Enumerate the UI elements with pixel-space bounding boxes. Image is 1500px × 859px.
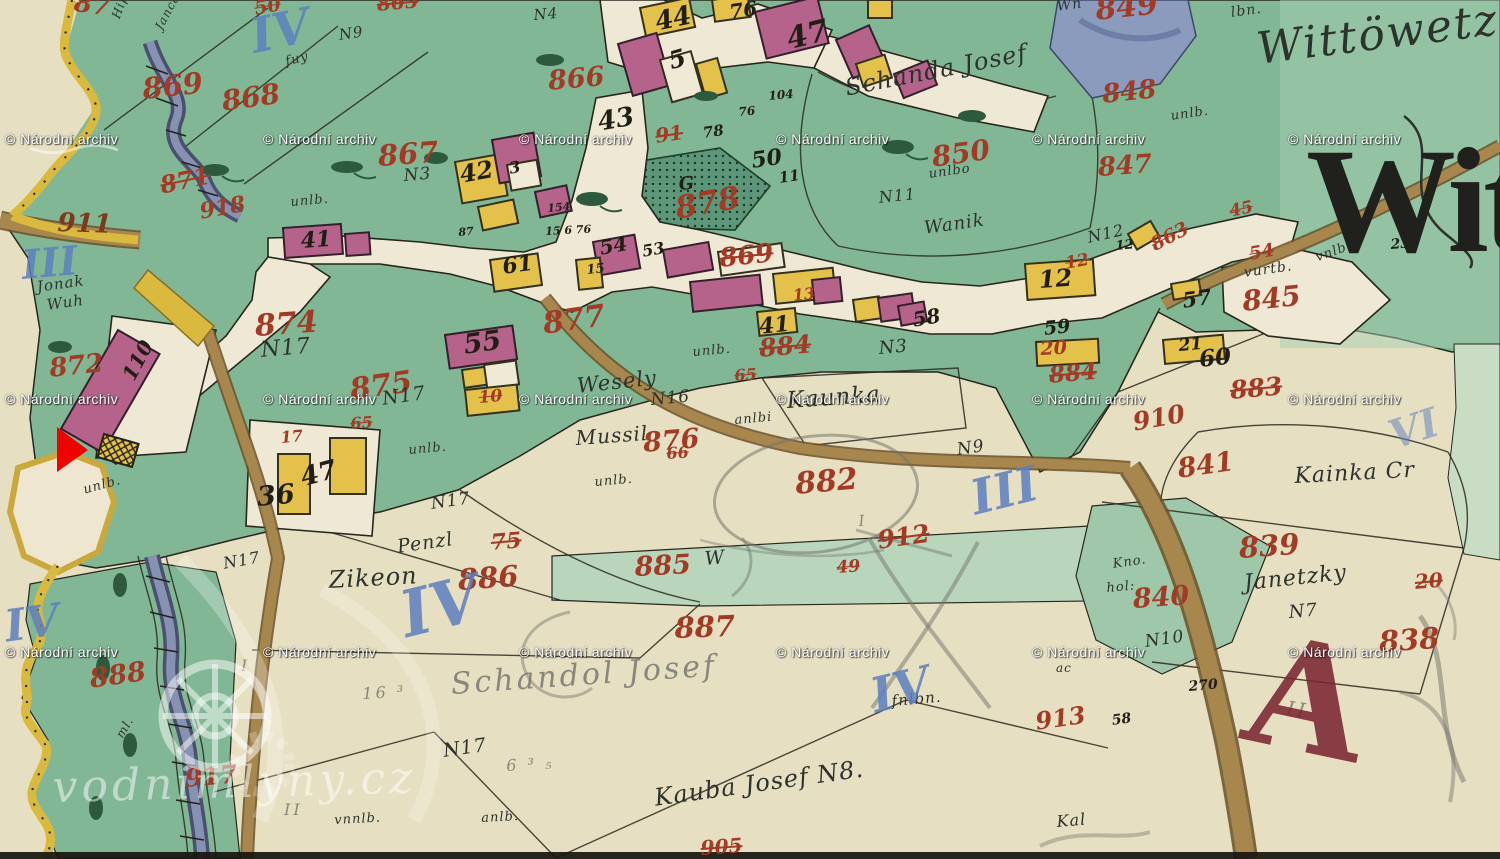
site-watermark-text: vodnimlyny.cz	[52, 752, 417, 813]
map-viewport[interactable]: 8750865849848847850866867868869871918872…	[0, 0, 1500, 859]
map-title-print: Wit	[1306, 126, 1500, 276]
map-canvas	[0, 0, 1500, 859]
scan-edge	[0, 852, 1500, 859]
